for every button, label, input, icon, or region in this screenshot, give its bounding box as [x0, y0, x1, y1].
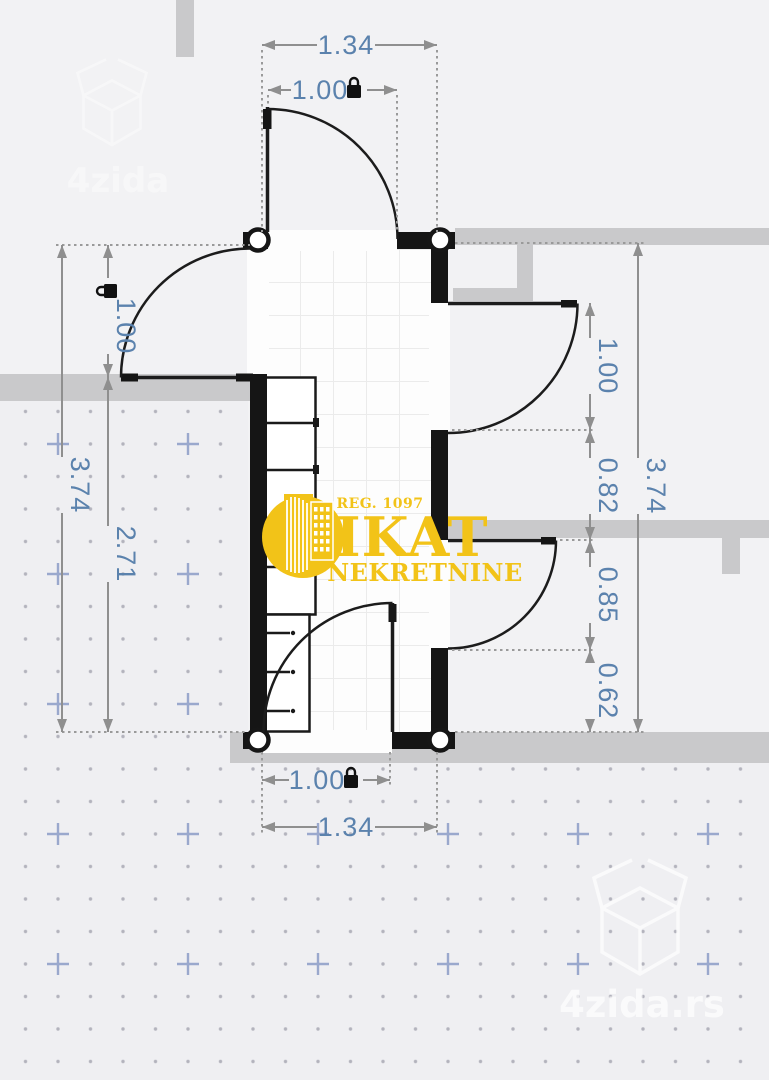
- logo-subtitle: NEKRETNINE: [327, 558, 523, 587]
- dim-label-bottom-door[interactable]: 1.00: [289, 765, 346, 795]
- doorway-top: [268, 230, 397, 251]
- gray-wall-top-stub: [176, 0, 194, 57]
- gray-wall-niche-vertical: [517, 245, 533, 289]
- watermark-top-left-text: 4zida: [67, 161, 169, 201]
- watermark-bottom-right-text: 4zida.rs: [559, 983, 725, 1026]
- dim-label-left-total[interactable]: 3.74: [65, 457, 95, 514]
- dim-label-top-door[interactable]: 1.00: [292, 75, 349, 105]
- doorway-bottom: [262, 730, 392, 753]
- gray-wall-niche-horizontal: [453, 288, 533, 301]
- wall-right-upper: [431, 249, 448, 303]
- dim-label-right-door-upper[interactable]: 1.00: [593, 338, 623, 395]
- wall-left: [250, 374, 267, 749]
- dim-label-right-total[interactable]: 3.74: [641, 458, 671, 515]
- node-top-right[interactable]: [430, 230, 451, 251]
- dim-label-right-door-lower[interactable]: 0.85: [593, 567, 623, 624]
- gray-wall-mid-right-stub: [722, 538, 740, 574]
- floor-plan-image: 1.34 1.00 3.74 1.00 2.71 1.00 0.82: [0, 0, 769, 1080]
- dim-label-top-total[interactable]: 1.34: [318, 30, 375, 60]
- gray-wall-mid-right: [446, 520, 769, 538]
- dim-label-right-wall-lower[interactable]: 0.62: [593, 663, 623, 720]
- node-bottom-left[interactable]: [248, 730, 269, 751]
- doorway-left: [247, 249, 269, 376]
- dim-label-right-wall-upper[interactable]: 0.82: [593, 458, 623, 515]
- dim-label-bottom-total[interactable]: 1.34: [318, 812, 375, 842]
- doorway-right-upper: [429, 303, 450, 431]
- floor-plan-canvas: 1.34 1.00 3.74 1.00 2.71 1.00 0.82: [0, 0, 769, 1080]
- agency-logo: REG. 1097 IKAT NEKRETNINE: [262, 494, 523, 587]
- node-bottom-right[interactable]: [430, 730, 451, 751]
- dim-label-left-wall-lower[interactable]: 2.71: [111, 526, 141, 583]
- node-top-left[interactable]: [248, 230, 269, 251]
- dim-label-left-door[interactable]: 1.00: [111, 298, 141, 355]
